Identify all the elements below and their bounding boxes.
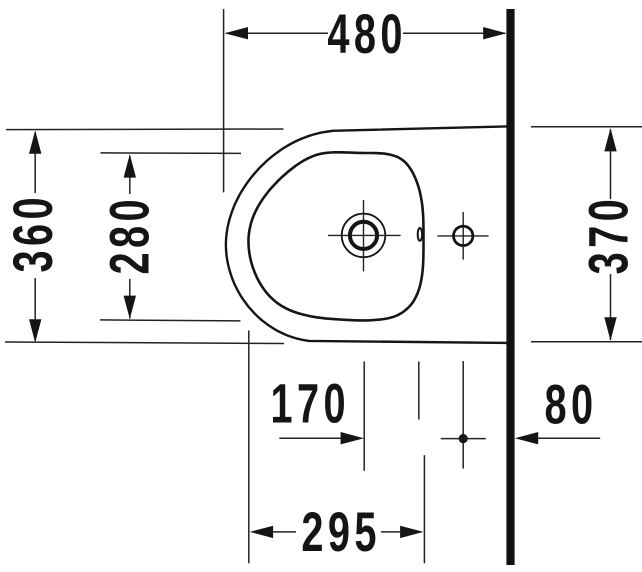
svg-text:280: 280	[99, 195, 161, 275]
svg-text:370: 370	[578, 195, 640, 275]
svg-text:170: 170	[270, 373, 350, 435]
svg-text:480: 480	[327, 3, 407, 65]
svg-text:295: 295	[301, 501, 381, 563]
svg-text:80: 80	[544, 374, 597, 436]
svg-text:360: 360	[3, 193, 65, 273]
